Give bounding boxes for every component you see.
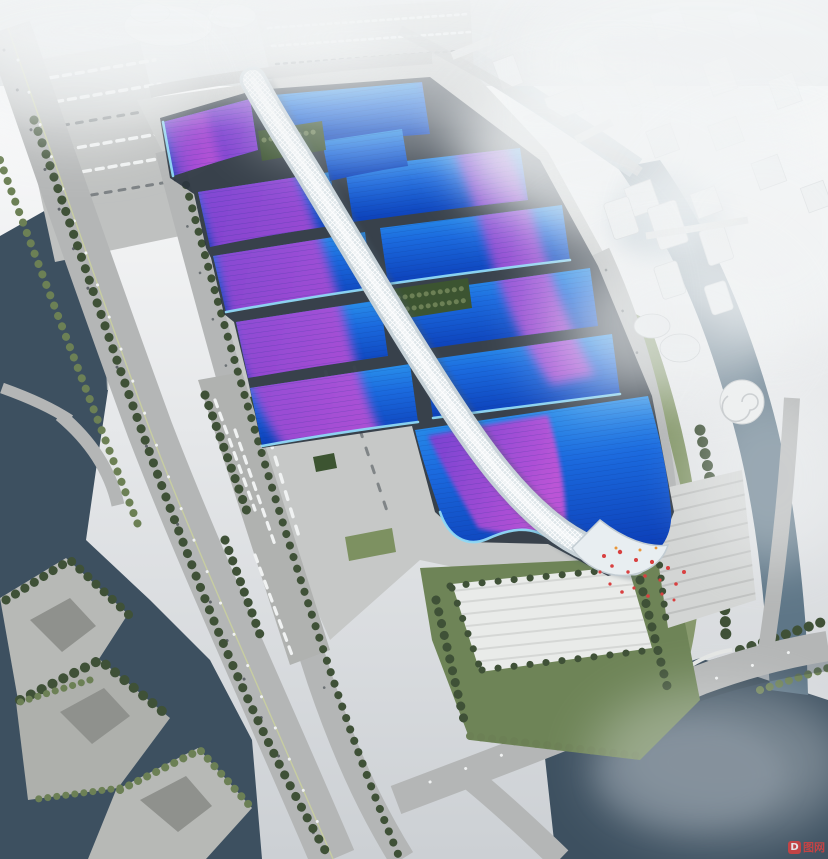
- aerial-rendering: D 图网: [0, 0, 828, 859]
- watermark-text: 图网: [803, 839, 825, 855]
- scene-canvas: [0, 0, 828, 859]
- watermark-logo: D: [788, 841, 801, 854]
- watermark: D 图网: [788, 839, 825, 855]
